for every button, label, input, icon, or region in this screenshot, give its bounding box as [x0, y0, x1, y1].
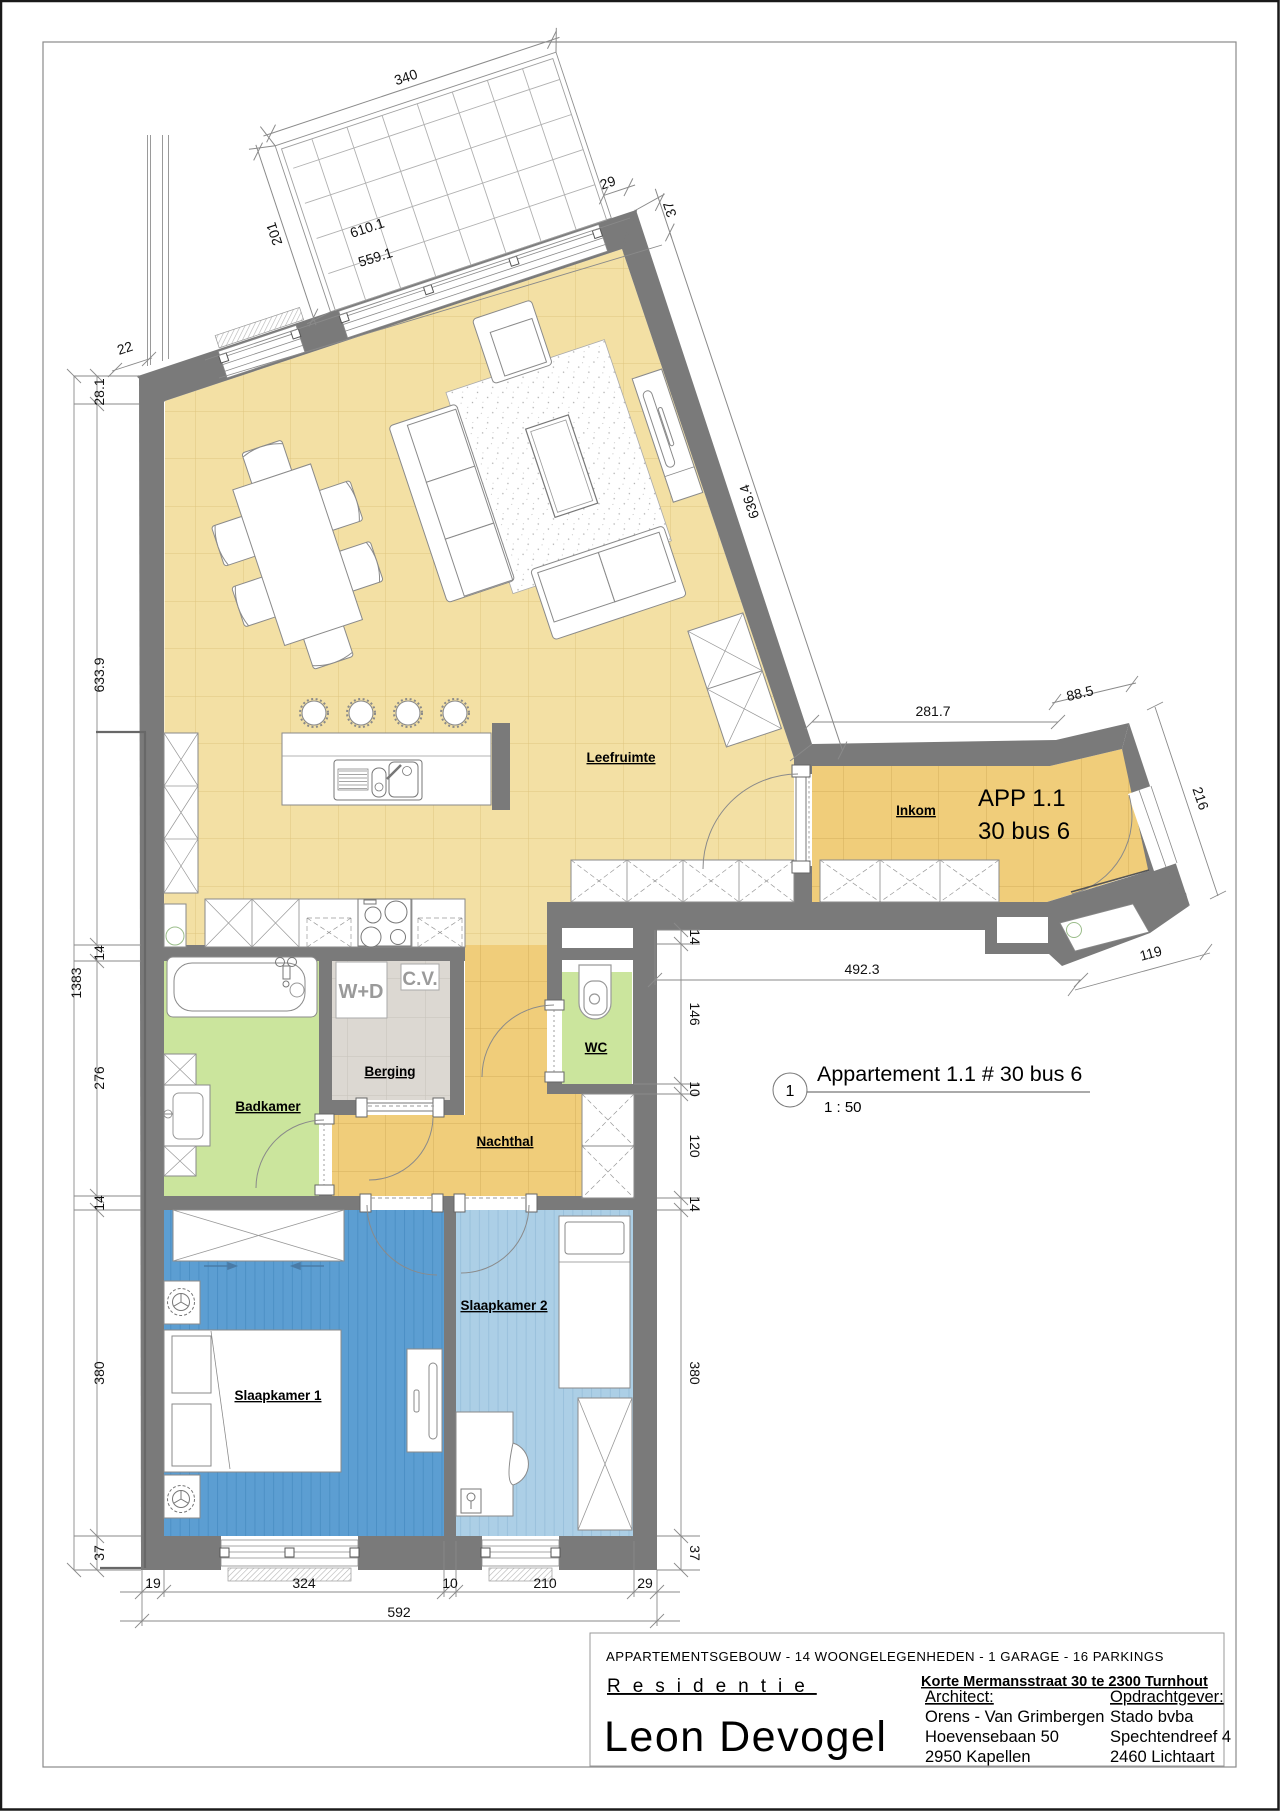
svg-text:2460 Lichtaart: 2460 Lichtaart [1110, 1748, 1215, 1766]
svg-text:Opdrachtgever:: Opdrachtgever: [1110, 1688, 1224, 1706]
svg-text:Architect:: Architect: [925, 1688, 994, 1706]
svg-text:380: 380 [687, 1361, 703, 1385]
svg-text:Spechtendreef 4: Spechtendreef 4 [1110, 1728, 1231, 1746]
svg-text:1: 1 [786, 1083, 795, 1100]
svg-text:120: 120 [687, 1134, 703, 1158]
svg-text:Badkamer: Badkamer [235, 1099, 301, 1114]
svg-text:324: 324 [292, 1575, 316, 1591]
svg-text:Appartement 1.1 # 30 bus 6: Appartement 1.1 # 30 bus 6 [817, 1062, 1082, 1086]
svg-text:Inkom: Inkom [896, 803, 936, 818]
svg-text:APPARTEMENTSGEBOUW - 14 WOONGE: APPARTEMENTSGEBOUW - 14 WOONGELEGENHEDEN… [606, 1649, 1164, 1664]
svg-text:10: 10 [442, 1575, 458, 1591]
svg-text:Slaapkamer 1: Slaapkamer 1 [234, 1388, 322, 1403]
svg-text:210: 210 [533, 1575, 557, 1591]
svg-text:W+D: W+D [339, 981, 384, 1003]
svg-text:WC: WC [585, 1040, 608, 1055]
svg-text:281.7: 281.7 [915, 703, 950, 719]
svg-text:Hoevensebaan 50: Hoevensebaan 50 [925, 1728, 1059, 1746]
svg-text:14: 14 [687, 1196, 703, 1212]
svg-text:28.1: 28.1 [91, 378, 107, 405]
svg-text:Residentie: Residentie [607, 1676, 817, 1697]
svg-text:29: 29 [637, 1575, 653, 1591]
svg-text:37: 37 [687, 1545, 703, 1561]
svg-text:14: 14 [91, 945, 107, 961]
svg-text:1 : 50: 1 : 50 [824, 1099, 862, 1116]
svg-text:Slaapkamer 2: Slaapkamer 2 [460, 1298, 547, 1313]
svg-text:14: 14 [91, 1195, 107, 1211]
svg-text:2950 Kapellen: 2950 Kapellen [925, 1748, 1031, 1766]
svg-text:276: 276 [91, 1066, 107, 1090]
svg-text:14: 14 [687, 929, 703, 945]
svg-text:380: 380 [91, 1361, 107, 1385]
svg-text:Stado bvba: Stado bvba [1110, 1708, 1194, 1726]
svg-text:C.V.: C.V. [402, 969, 437, 990]
svg-text:633.9: 633.9 [91, 657, 107, 692]
svg-text:30 bus 6: 30 bus 6 [978, 818, 1070, 845]
svg-text:Orens - Van Grimbergen: Orens - Van Grimbergen [925, 1708, 1104, 1726]
svg-text:Leefruimte: Leefruimte [586, 750, 656, 765]
svg-text:APP 1.1: APP 1.1 [978, 785, 1066, 812]
svg-text:19: 19 [145, 1575, 161, 1591]
svg-text:10: 10 [687, 1081, 703, 1097]
svg-text:492.3: 492.3 [844, 961, 879, 977]
svg-text:1383: 1383 [68, 967, 84, 998]
svg-text:146: 146 [687, 1002, 703, 1026]
svg-text:37: 37 [91, 1545, 107, 1561]
svg-text:592: 592 [387, 1604, 411, 1620]
svg-text:Berging: Berging [364, 1064, 415, 1079]
svg-text:Nachthal: Nachthal [476, 1134, 533, 1149]
svg-text:Leon Devogel: Leon Devogel [604, 1713, 887, 1761]
